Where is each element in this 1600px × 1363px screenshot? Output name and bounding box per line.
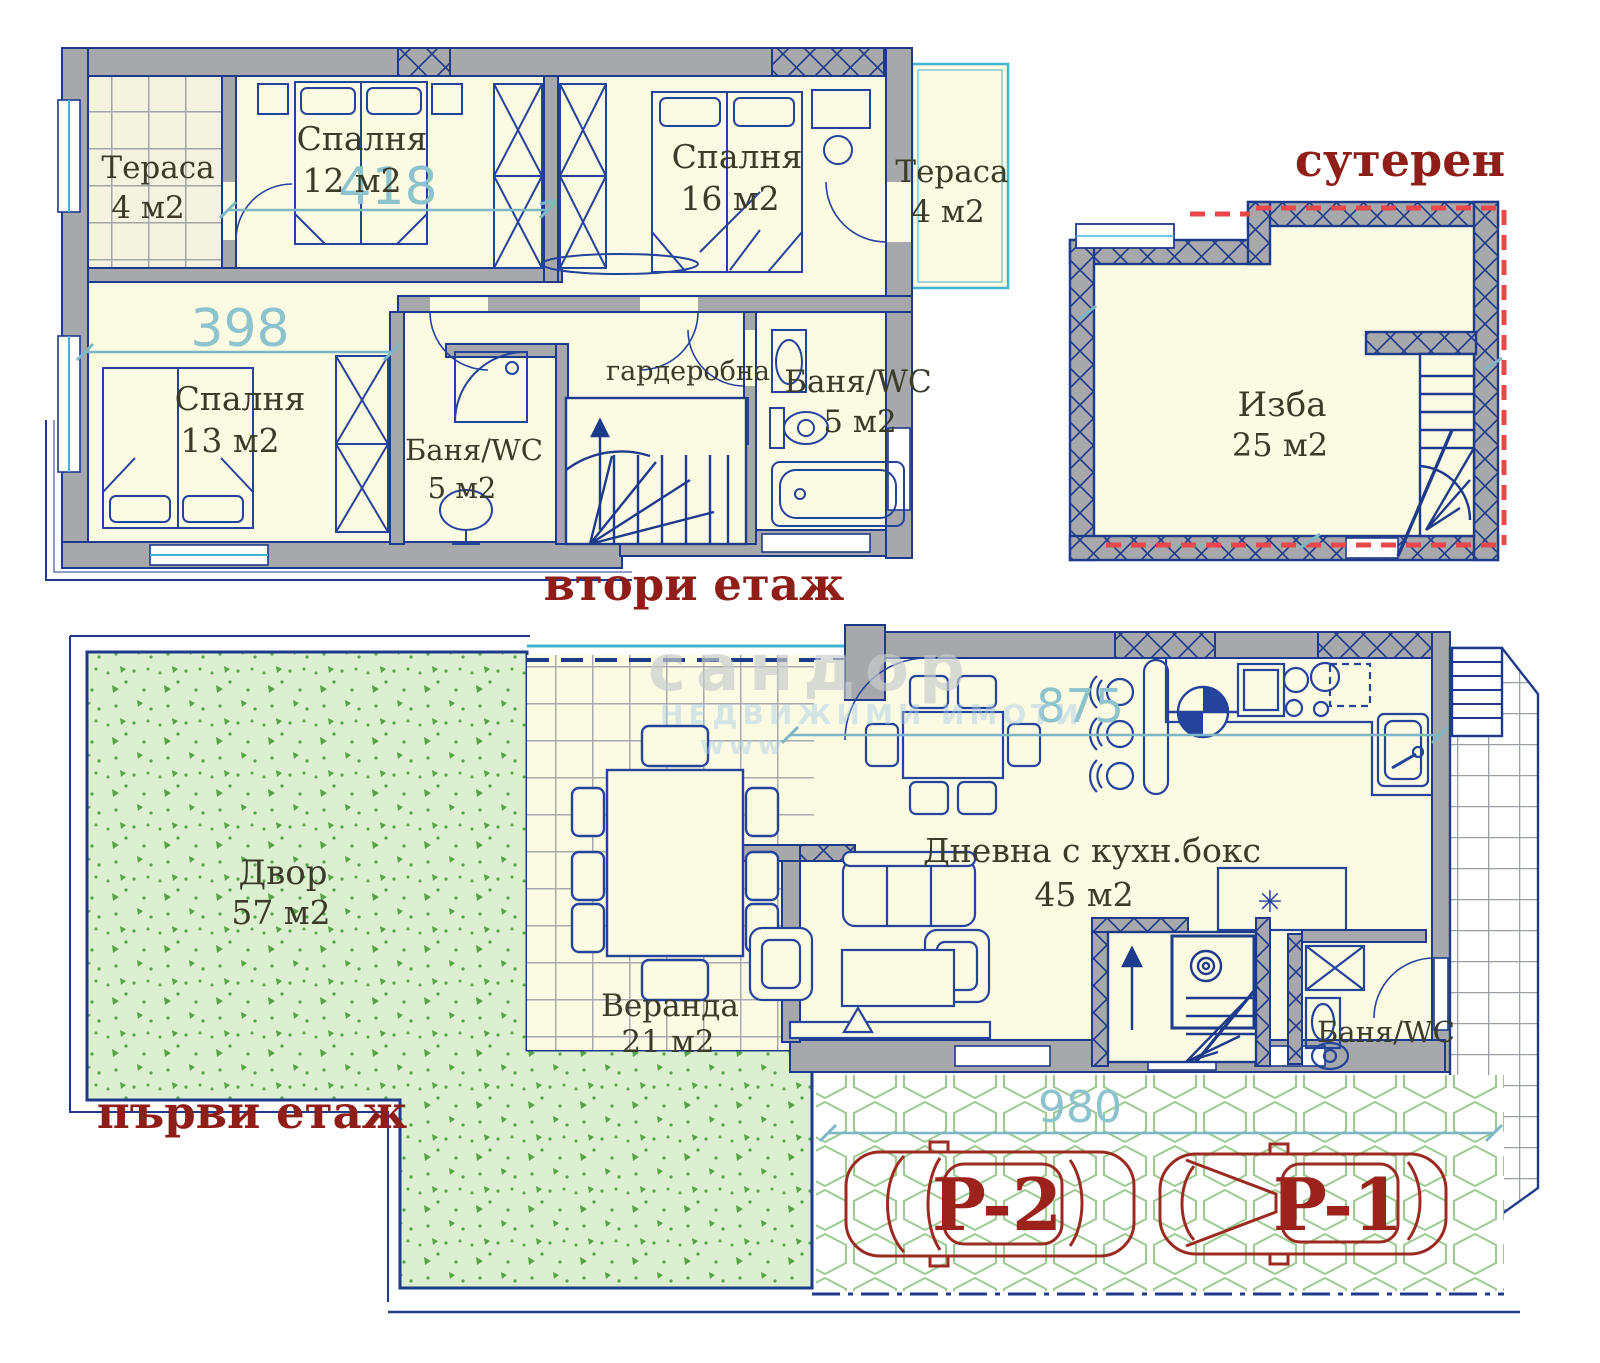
basement-plan: Изба 25 м2 сутерен — [1070, 133, 1505, 560]
staircase-second-floor — [566, 398, 746, 544]
room-label-bedroom16: Спалня — [672, 137, 803, 176]
room-area-veranda: 21 м2 — [621, 1024, 714, 1060]
floor-plan-drawing: 418 398 Тераса 4 м2 Спалня 12 м2 Спалня … — [0, 0, 1600, 1363]
room-area-bedroom13: 13 м2 — [180, 421, 279, 460]
first-floor-title: първи етаж — [97, 1086, 407, 1139]
watermark-line1: сандор — [648, 632, 975, 706]
room-area-bedroom12: 12 м2 — [302, 161, 401, 200]
room-label-bath-ff: Баня/WC — [1317, 1015, 1455, 1049]
basement-interior — [1094, 226, 1474, 536]
second-floor-plan: 418 398 Тераса 4 м2 Спалня 12 м2 Спалня … — [46, 48, 1009, 611]
parking-spot-label-p2: P-2 — [932, 1162, 1062, 1247]
room-label-wardrobe: гардеробна — [606, 356, 770, 387]
room-area-izba: 25 м2 — [1232, 426, 1328, 464]
room-label-bedroom13: Спалня — [175, 379, 306, 418]
appliance-symbol: ✳ — [1257, 886, 1282, 919]
room-label-terrace-left: Тераса — [101, 150, 214, 186]
room-area-terrace-left: 4 м2 — [111, 190, 184, 226]
room-label-terrace-right: Тераса — [895, 154, 1008, 190]
room-label-living: Дневна с кухн.бокс — [923, 831, 1261, 870]
second-floor-title: втори етаж — [544, 558, 845, 611]
watermark-line2: НЕДВИЖИМИ ИМОТИ — [660, 698, 1084, 731]
room-label-bath-left: Баня/WC — [405, 433, 543, 467]
room-label-izba: Изба — [1238, 385, 1327, 425]
room-label-bath-right: Баня/WC — [784, 364, 932, 400]
room-label-veranda: Веранда — [601, 988, 739, 1024]
watermark-line3: www — [700, 731, 787, 761]
room-area-living: 45 м2 — [1034, 875, 1133, 914]
room-area-bedroom16: 16 м2 — [680, 179, 779, 218]
floor-plan-canvas: 418 398 Тераса 4 м2 Спалня 12 м2 Спалня … — [0, 0, 1600, 1363]
parking-spot-label-p1: P-1 — [1273, 1162, 1403, 1247]
basement-title: сутерен — [1295, 133, 1505, 187]
dim-label-398: 398 — [190, 299, 289, 359]
room-area-bath-right: 5 м2 — [823, 404, 896, 440]
room-label-yard: Двор — [238, 853, 327, 893]
room-area-terrace-right: 4 м2 — [911, 194, 984, 230]
wall — [62, 542, 622, 568]
room-area-yard: 57 м2 — [231, 893, 330, 932]
dim-label-980: 980 — [1038, 1082, 1122, 1133]
staircase-first-floor — [1092, 918, 1270, 1066]
room-label-bedroom12: Спалня — [297, 119, 428, 158]
room-area-bath-left: 5 м2 — [428, 471, 497, 505]
